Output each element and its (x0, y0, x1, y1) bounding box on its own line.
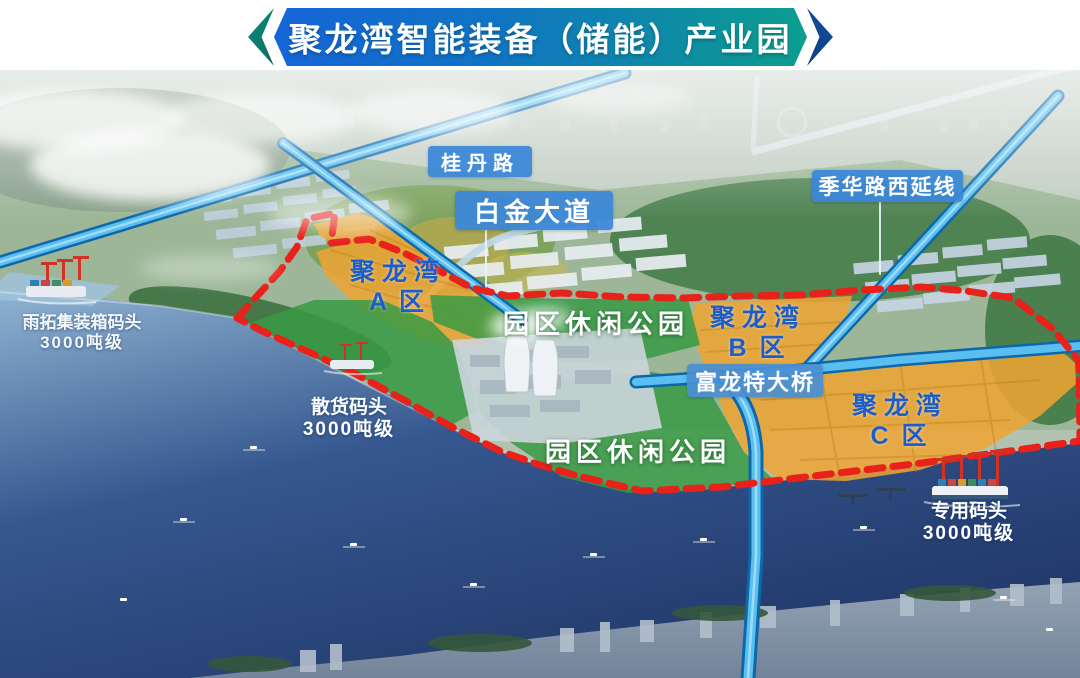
industrial-park-master-plan: 聚龙湾智能装备（储能）产业园 桂丹路 白金大道 季华路西延线 富龙特大桥 聚龙湾… (0, 0, 1080, 678)
road-label-jihua-extension: 季华路西延线 (812, 170, 963, 202)
photo-layers (0, 64, 1080, 678)
zone-b-district: B 区 (688, 334, 828, 364)
title-banner: 聚龙湾智能装备（储能）产业园 (248, 8, 833, 66)
cooling-tower (532, 340, 558, 396)
dock-label-container-terminal: 雨拓集装箱码头 3000吨级 (2, 313, 162, 352)
park-label-upper: 园区休闲公园 (496, 304, 696, 341)
road-label-guidan: 桂丹路 (428, 146, 532, 177)
road-label-baijin: 白金大道 (455, 191, 613, 230)
dock-label-dedicated: 专用码头 3000吨级 (908, 501, 1030, 545)
dock-name: 专用码头 (908, 501, 1030, 523)
dock-tonnage: 3000吨级 (284, 419, 414, 441)
zone-label-a: 聚龙湾 A 区 (328, 258, 468, 317)
zone-label-c: 聚龙湾 C 区 (830, 392, 970, 451)
banner-bar: 聚龙湾智能装备（储能）产业园 (274, 8, 807, 66)
dock-name: 雨拓集装箱码头 (2, 313, 162, 333)
page-title: 聚龙湾智能装备（储能）产业园 (289, 13, 793, 61)
dock-tonnage: 3000吨级 (908, 523, 1030, 545)
cooling-tower (504, 336, 530, 392)
zone-a-district: A 区 (328, 288, 468, 318)
zone-b-name: 聚龙湾 (688, 304, 828, 334)
park-label-lower: 园区休闲公园 (538, 432, 738, 469)
zone-c-name: 聚龙湾 (830, 392, 970, 422)
road-label-fulong-bridge: 富龙特大桥 (687, 364, 823, 397)
zone-a-name: 聚龙湾 (328, 258, 468, 288)
zone-label-b: 聚龙湾 B 区 (688, 304, 828, 363)
banner-right-chevron-icon (807, 8, 833, 66)
banner-left-chevron-icon (248, 8, 274, 66)
zone-c-district: C 区 (830, 422, 970, 452)
dock-label-bulk-cargo: 散货码头 3000吨级 (284, 397, 414, 441)
dock-name: 散货码头 (284, 397, 414, 419)
dock-tonnage: 3000吨级 (2, 333, 162, 353)
